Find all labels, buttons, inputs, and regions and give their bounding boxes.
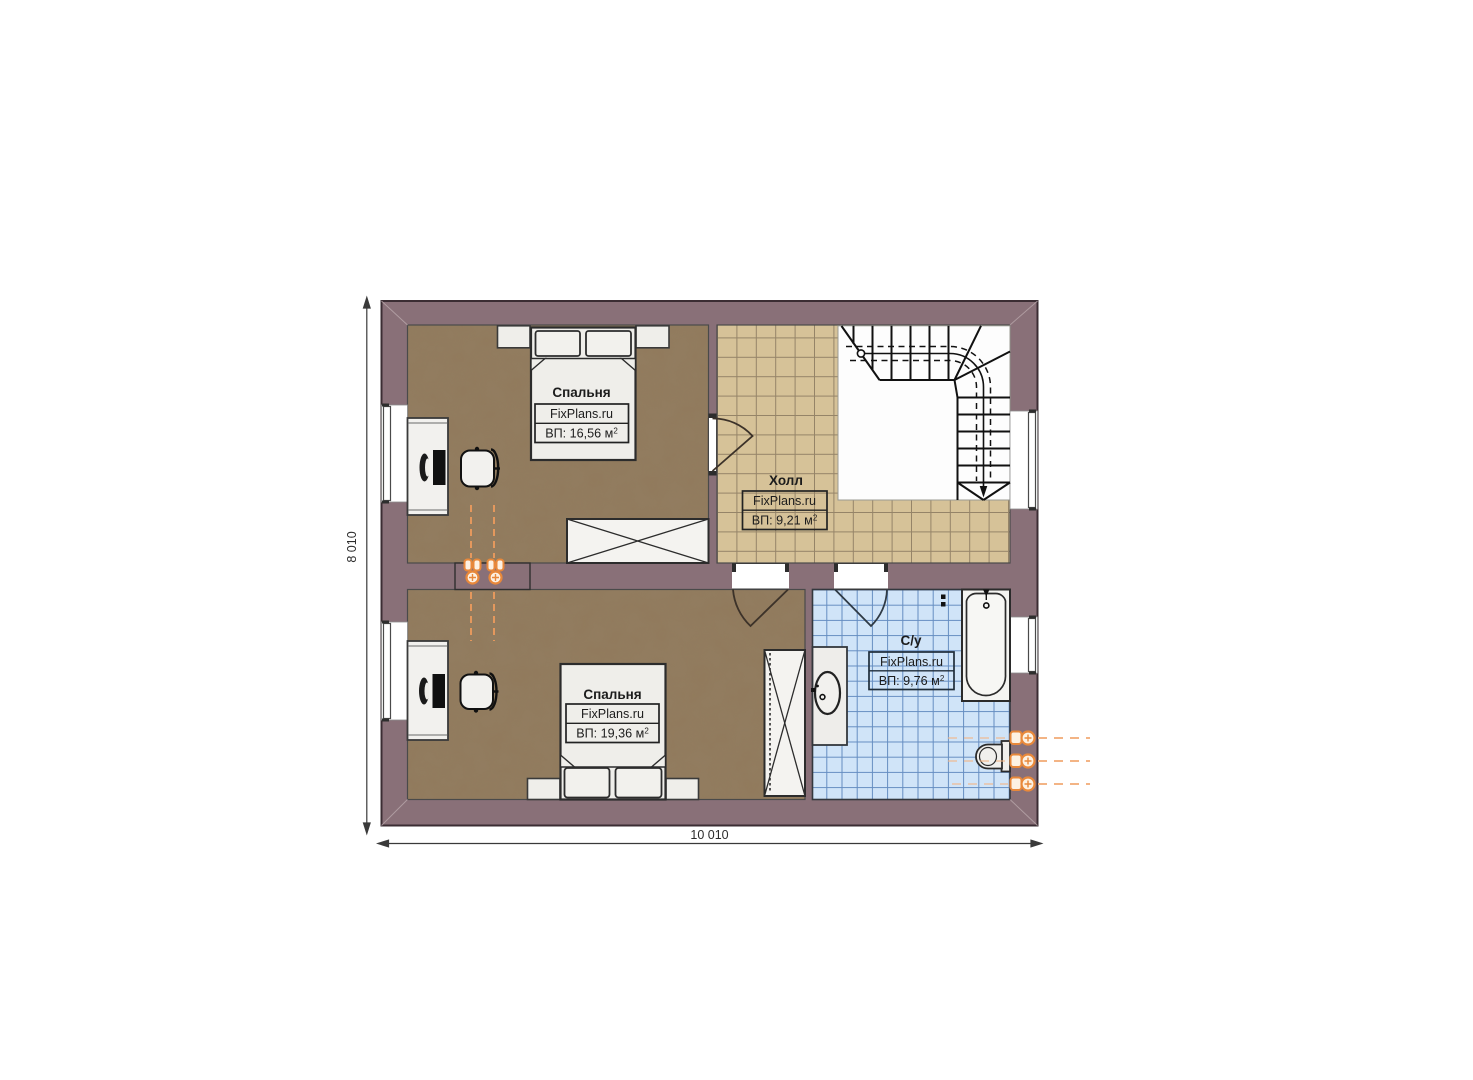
- svg-text:С/у: С/у: [900, 633, 922, 648]
- svg-text:FixPlans.ru: FixPlans.ru: [880, 655, 943, 669]
- svg-text:FixPlans.ru: FixPlans.ru: [581, 707, 644, 721]
- svg-text:ВП: 16,56 м2: ВП: 16,56 м2: [545, 427, 618, 441]
- svg-text:Холл: Холл: [769, 473, 803, 488]
- svg-text:Спальня: Спальня: [583, 687, 641, 702]
- svg-text:10 010: 10 010: [690, 828, 728, 842]
- svg-text:FixPlans.ru: FixPlans.ru: [753, 494, 816, 508]
- svg-text:Спальня: Спальня: [552, 385, 610, 400]
- svg-text:ВП: 19,36 м2: ВП: 19,36 м2: [576, 727, 649, 741]
- svg-text:ВП: 9,21 м2: ВП: 9,21 м2: [752, 514, 818, 528]
- svg-text:FixPlans.ru: FixPlans.ru: [550, 407, 613, 421]
- svg-text:8 010: 8 010: [345, 531, 359, 562]
- svg-text:ВП: 9,76 м2: ВП: 9,76 м2: [879, 674, 945, 688]
